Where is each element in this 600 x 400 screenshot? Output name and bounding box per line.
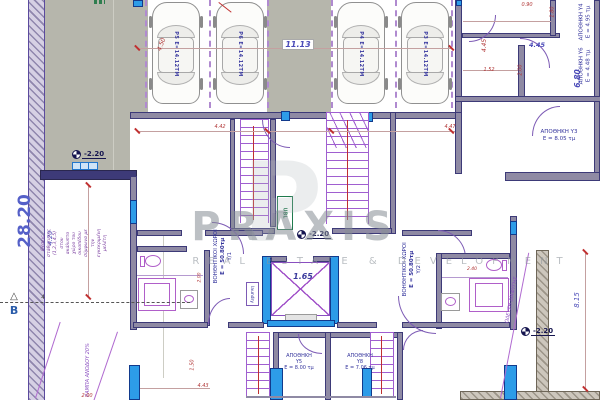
dimension-text: 2.00 bbox=[81, 393, 92, 399]
window-opening bbox=[456, 0, 462, 6]
wall bbox=[455, 112, 462, 174]
floor-plan-canvas: Ρ5 Ε=14.12ΤΜ Ρ6 Ε=14.12ΤΜ Ρ4 Ε=14.12ΤΜ Ρ… bbox=[0, 0, 600, 400]
dimension-text: 11.13 bbox=[282, 39, 313, 50]
window-opening bbox=[130, 200, 137, 224]
room-name: ΑΠΟΘΗΚΗ bbox=[345, 353, 374, 359]
car-wheel bbox=[398, 16, 401, 28]
level-marker: -2.20 bbox=[72, 150, 106, 159]
level-symbol-icon bbox=[521, 327, 530, 336]
room-area: Ε = 50.80τμ bbox=[220, 229, 227, 283]
sink bbox=[445, 297, 456, 306]
car-wheel bbox=[449, 16, 452, 28]
car-wheel bbox=[385, 78, 388, 90]
dimension-line bbox=[137, 131, 455, 132]
parking-spot-label: Ρ5 Ε=14.12ΤΜ bbox=[173, 31, 179, 77]
dimension-line bbox=[585, 252, 586, 390]
window-opening bbox=[510, 221, 517, 235]
room-area: Ε = 8.00 τμ bbox=[284, 365, 313, 371]
room-name: ΑΠΟΘΗΚΗ bbox=[284, 353, 313, 359]
wall bbox=[40, 170, 137, 180]
room-area: Ε = 4.48 τμ bbox=[586, 47, 593, 84]
wall bbox=[594, 0, 600, 180]
section-label: B bbox=[10, 304, 18, 317]
dimension-text: 8.15 bbox=[573, 292, 581, 308]
wall bbox=[332, 228, 392, 234]
partition-line bbox=[137, 275, 203, 276]
level-value: -2.20 bbox=[82, 151, 106, 159]
staircase bbox=[240, 119, 269, 223]
room-name: ΒΟΗΘΗΤΙΚΟΙ ΧΩΡΟΙ bbox=[213, 229, 220, 283]
dimension-text: 1.65 bbox=[293, 272, 313, 281]
laundry-label: laundry bbox=[250, 285, 255, 302]
level-symbol-icon bbox=[297, 230, 306, 239]
wall bbox=[137, 230, 182, 236]
car-wheel bbox=[398, 78, 401, 90]
door-swing-arc bbox=[298, 334, 322, 354]
level-symbol-icon bbox=[72, 150, 81, 159]
lift-label: UBL bbox=[282, 207, 288, 218]
section-tick-label: 4 bbox=[41, 294, 45, 301]
dimension-text: 4.43 bbox=[197, 383, 208, 389]
window-opening bbox=[129, 365, 140, 400]
stair-direction-arrow bbox=[347, 120, 348, 220]
wall bbox=[228, 322, 264, 328]
dimension-text: 0.90 bbox=[521, 2, 532, 8]
parking-spot-label: Ρ6 Ε=14.12ΤΜ bbox=[237, 31, 243, 77]
exterior-wall-right bbox=[536, 250, 549, 396]
note-text: Θέσεις στάθμευσης (1,2,3,4,5) στον ακάλυ… bbox=[41, 229, 109, 257]
car-wheel bbox=[213, 16, 216, 28]
stair-direction-arrow bbox=[253, 126, 254, 220]
door-swing-arc bbox=[398, 296, 436, 334]
dimension-text: 28.20 bbox=[15, 194, 35, 248]
parking-stall-line bbox=[209, 0, 211, 108]
toilet bbox=[145, 255, 161, 267]
elevator-wall bbox=[262, 256, 271, 324]
stair-direction-arrow bbox=[381, 336, 382, 394]
green-marker bbox=[94, 0, 105, 4]
wall bbox=[137, 246, 187, 252]
elevator-wall bbox=[267, 320, 335, 327]
room-area: Ε = 7.06 τμ bbox=[345, 365, 374, 371]
car-wheel bbox=[334, 16, 337, 28]
exterior-wall-bottom bbox=[460, 391, 600, 400]
dimension-text: 2.40 bbox=[467, 267, 477, 272]
stair-direction-arrow bbox=[258, 336, 259, 394]
dimension-text: 2.00 bbox=[198, 272, 203, 282]
level-value: -2.20 bbox=[307, 231, 331, 239]
car-wheel bbox=[264, 78, 267, 90]
room-name: ΑΠΟΘΗΚΗ Υ3 bbox=[540, 129, 577, 136]
section-triangle-icon: △ bbox=[10, 291, 18, 302]
shower-basin bbox=[475, 283, 503, 307]
parking-spot-label: Ρ4 Ε=14.12ΤΜ bbox=[358, 31, 364, 77]
wall bbox=[325, 332, 331, 400]
wall bbox=[337, 322, 377, 328]
wall bbox=[130, 112, 460, 119]
window-opening bbox=[362, 368, 372, 398]
dimension-text: 4.47 bbox=[444, 124, 455, 130]
elevator-wall bbox=[330, 256, 339, 324]
wall bbox=[505, 172, 600, 181]
section-cut-line bbox=[0, 302, 190, 303]
wall bbox=[550, 0, 556, 36]
dimension-text: 4.45 bbox=[529, 41, 545, 49]
car-wheel bbox=[200, 78, 203, 90]
car-wheel bbox=[264, 16, 267, 28]
wall bbox=[133, 322, 208, 328]
car-wheel bbox=[149, 16, 152, 28]
car-wheel bbox=[200, 16, 203, 28]
window-opening bbox=[133, 0, 143, 7]
driveway-area bbox=[45, 0, 130, 172]
car-wheel bbox=[149, 78, 152, 90]
toilet-tank bbox=[502, 260, 507, 271]
room-area: Ε = 8.05 τμ bbox=[540, 136, 577, 143]
car-top-view: Ρ6 Ε=14.12ΤΜ bbox=[212, 2, 268, 106]
ramp-edge-line bbox=[93, 332, 118, 400]
door-swing-arc bbox=[208, 298, 230, 324]
wall bbox=[402, 230, 472, 236]
wall bbox=[436, 253, 442, 329]
level-value: -2.20 bbox=[531, 328, 555, 336]
dimension-text: 1.52 bbox=[483, 67, 494, 73]
elevator-cab bbox=[271, 262, 330, 316]
car-wheel bbox=[385, 16, 388, 28]
room-id: Υ/2 bbox=[415, 242, 422, 296]
level-detail-cells bbox=[72, 162, 98, 170]
dimension-text: 1.50 bbox=[190, 359, 196, 370]
wall bbox=[436, 253, 510, 259]
dimension-line bbox=[463, 21, 551, 22]
parking-aisle bbox=[267, 0, 331, 112]
level-marker: -2.20 bbox=[521, 327, 555, 336]
dimension-text: 4.45 bbox=[482, 38, 489, 51]
wall bbox=[230, 119, 235, 231]
car-top-view: Ρ5 Ε=14.12ΤΜ bbox=[148, 2, 204, 106]
car-top-view: Ρ3 Ε=14.12ΤΜ bbox=[397, 2, 453, 106]
construction-line bbox=[113, 0, 114, 170]
door-swing-arc bbox=[403, 330, 423, 350]
car-top-view: Ρ4 Ε=14.12ΤΜ bbox=[333, 2, 389, 106]
level-marker: -2.20 bbox=[297, 230, 331, 239]
dimension-text: 2.00 bbox=[518, 64, 524, 75]
car-wheel bbox=[449, 78, 452, 90]
toilet bbox=[486, 259, 502, 271]
car-wheel bbox=[213, 78, 216, 90]
car-wheel bbox=[334, 78, 337, 90]
room-name: ΒΟΗΘΗΤΙΚΟΙ ΧΩΡΟΙ bbox=[402, 242, 409, 296]
ramp-label: ΡΑΜΠΑ ΑΝΟΔΟΥ 20% bbox=[85, 343, 91, 397]
wall bbox=[397, 332, 403, 400]
dimension-text: 1.80 bbox=[550, 6, 556, 17]
wall bbox=[246, 396, 396, 398]
dimension-text: 4.42 bbox=[214, 124, 225, 130]
room-area: Ε = 4.95 τμ bbox=[586, 3, 593, 40]
wall bbox=[455, 96, 600, 102]
parking-stall-line bbox=[145, 0, 147, 108]
parking-spot-label: Ρ3 Ε=14.12ΤΜ bbox=[422, 31, 428, 77]
room-area: Ε = 50.80τμ bbox=[409, 242, 416, 296]
room-id: Υ/1 bbox=[226, 229, 233, 283]
